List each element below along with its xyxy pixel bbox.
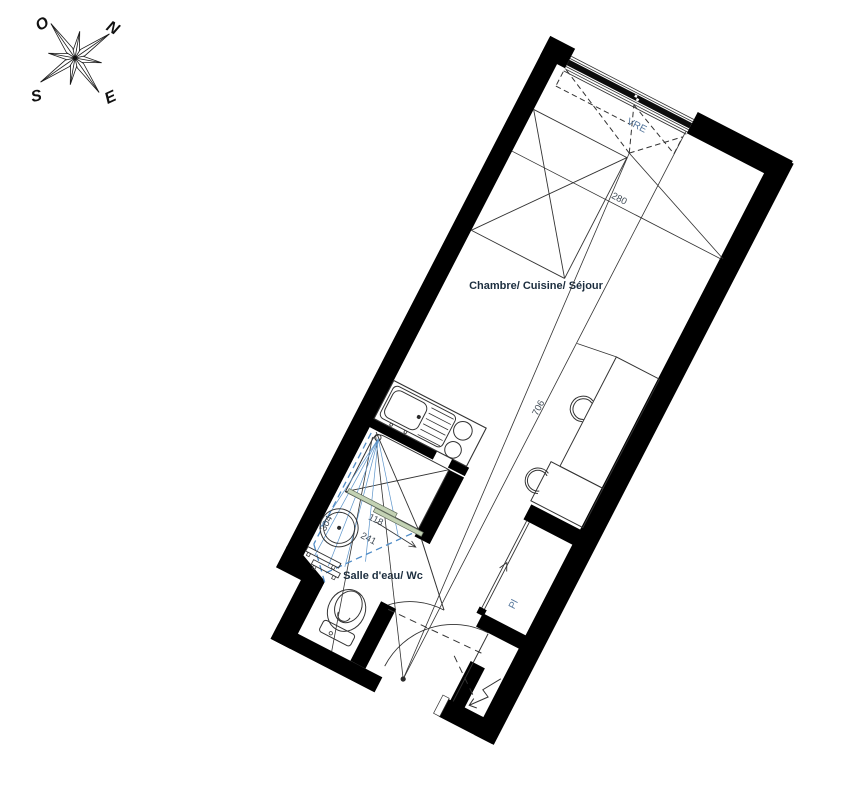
svg-text:Chambre/ Cuisine/ Séjour: Chambre/ Cuisine/ Séjour: [469, 280, 604, 292]
svg-text:VRE: VRE: [625, 116, 649, 135]
svg-text:706: 706: [530, 398, 547, 417]
svg-text:S: S: [29, 87, 43, 106]
svg-text:Pl: Pl: [507, 598, 521, 611]
svg-text:Salle d'eau/ Wc: Salle d'eau/ Wc: [343, 570, 423, 582]
svg-text:E: E: [102, 87, 120, 107]
svg-text:O: O: [33, 14, 53, 35]
